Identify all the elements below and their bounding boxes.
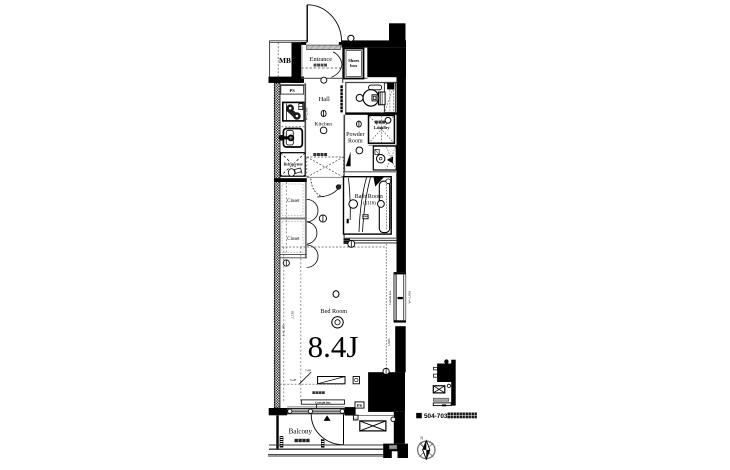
svg-text:3=4F: 3=4F (290, 378, 297, 382)
svg-text:7=9F: 7=9F (305, 369, 312, 373)
svg-text:Curtain box: Curtain box (388, 290, 392, 305)
svg-text:(1116): (1116) (363, 201, 376, 206)
svg-text:Hall: Hall (319, 96, 330, 103)
svg-text:504-703: 504-703 (424, 413, 448, 420)
svg-text:Closet: Closet (287, 237, 300, 242)
svg-text:PS: PS (357, 403, 363, 408)
svg-text:Bed Room: Bed Room (320, 308, 347, 315)
svg-text:Bath Room: Bath Room (355, 193, 384, 200)
svg-text:Room: Room (348, 138, 363, 144)
svg-text:MB: MB (279, 56, 291, 65)
svg-text:Closet: Closet (287, 199, 300, 204)
svg-text:Curtain box: Curtain box (315, 400, 331, 404)
svg-text:Balcony: Balcony (289, 428, 313, 436)
svg-text:Laundry: Laundry (374, 125, 391, 130)
svg-text:Refrigerator: Refrigerator (284, 162, 304, 166)
svg-text:Powder: Powder (346, 132, 364, 138)
svg-text:8.4J: 8.4J (308, 329, 359, 364)
svg-text:Kitchen: Kitchen (314, 121, 332, 127)
svg-text:N: N (420, 437, 423, 441)
svg-text:PS: PS (290, 88, 296, 93)
svg-text:Entrance: Entrance (310, 56, 333, 63)
svg-text:box: box (350, 63, 358, 68)
